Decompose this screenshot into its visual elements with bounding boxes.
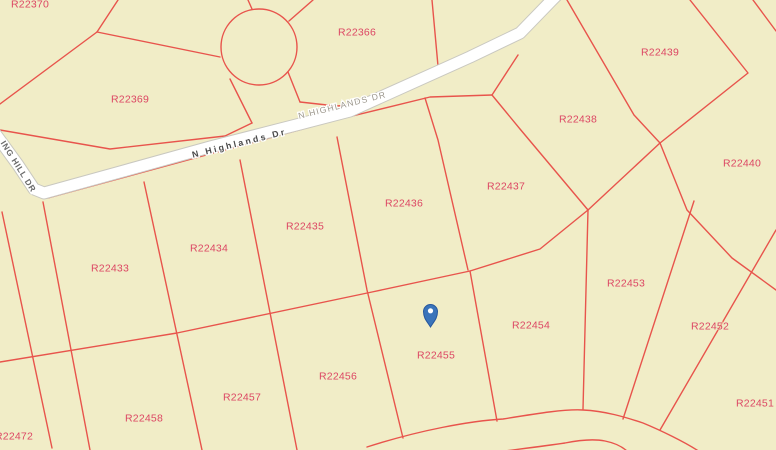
parcel-label-R22439: R22439 bbox=[641, 47, 679, 59]
parcel-label-R22435: R22435 bbox=[286, 221, 324, 233]
parcel-label-R22370: R22370 bbox=[11, 0, 49, 11]
parcel-label-R22438: R22438 bbox=[559, 114, 597, 126]
map-background bbox=[0, 0, 776, 450]
parcel-label-R22472: R22472 bbox=[0, 431, 33, 443]
marker-pin-dot bbox=[428, 308, 433, 313]
parcel-label-R22366: R22366 bbox=[338, 27, 376, 39]
parcel-label-R22455: R22455 bbox=[417, 350, 455, 362]
parcel-label-R22434: R22434 bbox=[190, 243, 228, 255]
parcel-label-R22451: R22451 bbox=[736, 398, 774, 410]
map-canvas[interactable]: N Highlands DrN HIGHLANDS DRING HILL DR … bbox=[0, 0, 776, 450]
parcel-label-R22433: R22433 bbox=[91, 263, 129, 275]
parcel-label-R22369: R22369 bbox=[111, 94, 149, 106]
parcel-label-R22452: R22452 bbox=[691, 321, 729, 333]
parcel-label-R22440: R22440 bbox=[723, 158, 761, 170]
parcel-label-R22437: R22437 bbox=[487, 181, 525, 193]
parcel-label-R22458: R22458 bbox=[125, 413, 163, 425]
parcel-label-R22456: R22456 bbox=[319, 371, 357, 383]
parcel-label-R22436: R22436 bbox=[385, 198, 423, 210]
parcel-label-R22457: R22457 bbox=[223, 392, 261, 404]
parcel-label-R22453: R22453 bbox=[607, 278, 645, 290]
parcel-label-R22454: R22454 bbox=[512, 320, 550, 332]
